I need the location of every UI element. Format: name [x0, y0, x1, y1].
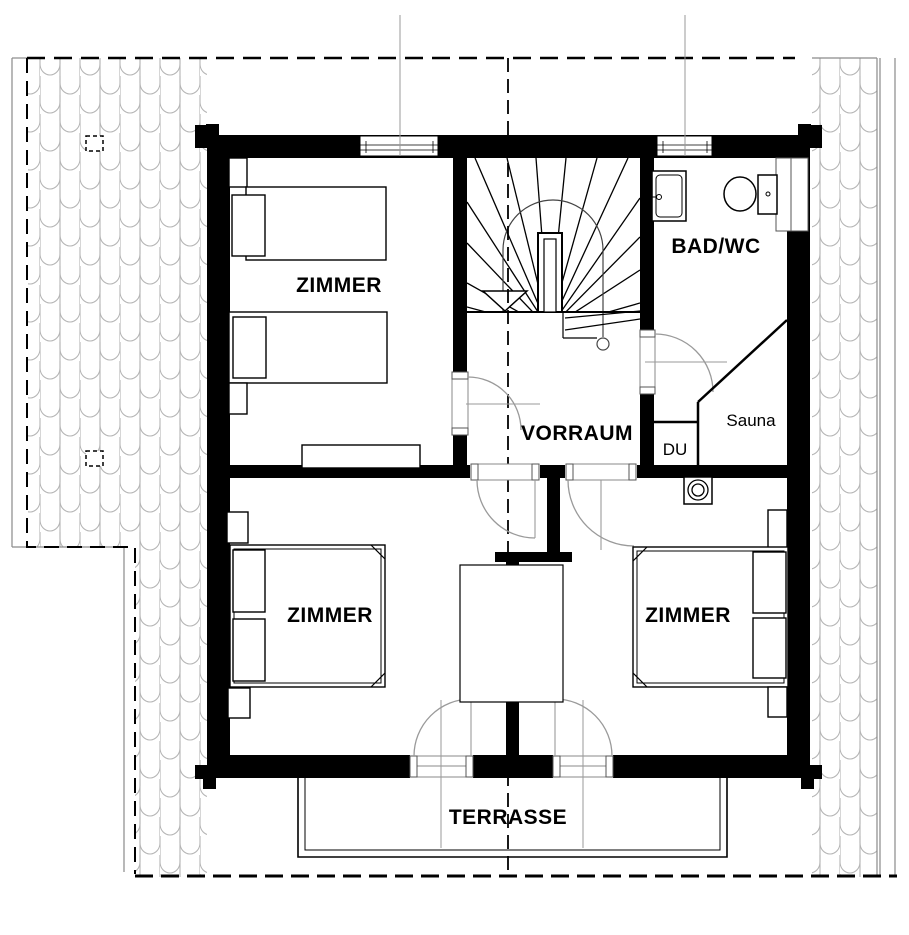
roof-opening-marker-lower	[86, 451, 103, 466]
corner-notch-br-right	[810, 765, 822, 779]
wardrobe	[460, 565, 563, 702]
label-zimmer-bottom-right: ZIMMER	[645, 604, 731, 627]
dresser	[302, 445, 420, 468]
corner-notch-bl-left	[195, 765, 207, 779]
pillow	[232, 195, 265, 256]
nightstand	[768, 510, 787, 548]
pillow	[233, 317, 266, 378]
wall-divider-jog	[495, 552, 572, 562]
nightstand	[768, 687, 787, 717]
nightstand	[227, 512, 248, 543]
flue	[684, 477, 712, 504]
label-vorraum: VORRAUM	[521, 422, 633, 445]
roof-opening-marker-upper	[86, 136, 103, 151]
nightstand	[228, 688, 250, 718]
label-zimmer-bottom-left: ZIMMER	[287, 604, 373, 627]
wall-exterior-bottom-middle	[473, 755, 553, 778]
roof-hatch-left-lower	[135, 547, 207, 877]
pillow	[753, 552, 786, 613]
wall-middle-center	[540, 465, 565, 478]
wall-stair-east-lower	[640, 394, 654, 468]
label-terrasse: TERRASSE	[449, 806, 567, 829]
bed-single-1	[246, 187, 386, 260]
label-sauna: Sauna	[726, 411, 776, 430]
wall-stair-west-lower	[453, 435, 467, 468]
window-niche-bathroom	[776, 158, 808, 231]
pillow	[233, 619, 265, 681]
corner-notch-tr-right	[810, 125, 822, 148]
label-bad-wc: BAD/WC	[671, 235, 760, 258]
wall-divider-stub	[547, 478, 560, 554]
corner-notch-tl-up	[206, 124, 219, 135]
wall-exterior-bottom-left	[207, 755, 410, 778]
label-zimmer-top-left: ZIMMER	[296, 274, 382, 297]
stair-walk-line-start	[597, 338, 609, 350]
roof-hatch-right	[812, 58, 877, 877]
nightstand	[229, 158, 247, 187]
corner-notch-bl-down	[203, 778, 216, 789]
wall-exterior-bottom-right	[613, 755, 810, 778]
floor-plan: ZIMMER ZIMMER ZIMMER VORRAUM BAD/WC DU S…	[0, 0, 909, 935]
wall-middle-east	[637, 465, 787, 478]
wall-stair-west-upper	[453, 158, 467, 372]
sink	[652, 171, 686, 221]
pillow	[233, 550, 265, 612]
wall-exterior-top	[207, 135, 810, 158]
pillow	[753, 618, 786, 678]
window-top-left	[360, 136, 438, 156]
stair-newel-inner	[544, 239, 556, 312]
wall-exterior-left	[207, 135, 230, 778]
label-du: DU	[663, 440, 688, 459]
corner-notch-tl-left	[195, 125, 207, 148]
roof-hatch-left-upper	[28, 58, 207, 547]
corner-notch-br-down	[801, 778, 814, 789]
nightstand	[229, 383, 247, 414]
corner-notch-tr-up	[798, 124, 811, 135]
